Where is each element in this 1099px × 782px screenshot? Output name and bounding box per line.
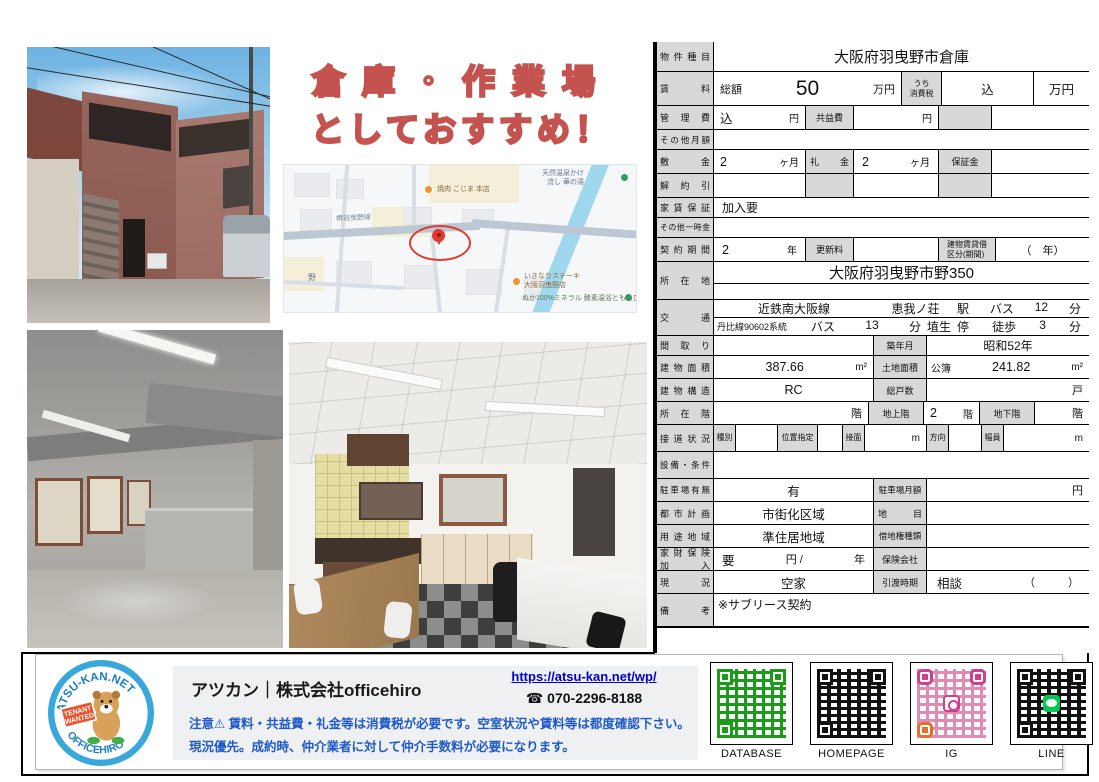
empty-gray-cell (806, 174, 854, 197)
white-desk (517, 558, 647, 648)
frontage-cell: m (865, 425, 927, 451)
row-label: 用途地域 (657, 525, 714, 547)
qr-instagram-pattern (917, 669, 986, 738)
row-label: 賃料 (657, 72, 714, 105)
row-label: 都市計画 (657, 502, 714, 524)
row-floor-located: 所在階 階 地上階 2階 地下階 階 (657, 402, 1089, 425)
row-label: 備考 (657, 594, 714, 626)
utility-pole (249, 47, 253, 215)
qr-database-label: DATABASE (710, 748, 793, 760)
other-monthly-value (714, 130, 1089, 149)
qr-line-pattern (1017, 669, 1086, 738)
row-label: 物件種目 (657, 42, 714, 71)
land-category-value (927, 502, 1089, 524)
insurance-company-label: 保険会社 (874, 548, 927, 570)
rail-line: 近鉄南大阪線 (714, 300, 874, 317)
contact-block: https://atsu-kan.net/wp/ ☎ 070-2296-8188 (476, 668, 692, 707)
total-units-value: 戸 (927, 379, 1089, 401)
transport-line1: 近鉄南大阪線 恵我ノ荘 駅バス12分 (714, 300, 1089, 318)
direction-label: 方向 (927, 425, 949, 451)
basement-cell: 階 (1035, 402, 1089, 424)
floor-shine (57, 576, 217, 626)
property-flyer-page: 倉庫・作業場 としておすすめ！ 天然温泉かけ流 (0, 0, 1099, 782)
photo-warehouse-interior (27, 330, 283, 648)
row-structure: 建物構造 RC 総戸数 戸 (657, 379, 1089, 402)
map-main-road (472, 219, 637, 239)
bus-time: バス13分 (811, 318, 921, 335)
row-property-type: 物件種目 大阪府羽曳野市倉庫 (657, 42, 1089, 72)
mascot-ear (112, 691, 120, 699)
qr-homepage-pattern (817, 669, 886, 738)
address-line2 (714, 284, 1089, 299)
onsen-poi-icon (620, 173, 629, 182)
map-block (404, 207, 432, 225)
mascot-ear (93, 691, 101, 699)
photo-building-exterior (27, 47, 270, 323)
above-ground-label: 地上階 (869, 402, 924, 424)
deposit-cell: 2ヶ月 (714, 150, 806, 173)
station-access: 駅バス12分 (957, 300, 1089, 317)
empty-cell (992, 106, 1089, 129)
address-value: 大阪府羽曳野市野350 (714, 262, 1089, 284)
window-frame (35, 478, 83, 546)
remarks-value: ※サブリース契約 (714, 594, 1089, 626)
row-parking: 駐車場有無 有 駐車場月額 円 (657, 479, 1089, 502)
management-fee-cell: 込円 (714, 106, 806, 129)
row-label: 契約期間 (657, 238, 714, 261)
headline-line1: 倉庫・作業場 (273, 58, 651, 106)
road-type-label: 種別 (714, 425, 736, 451)
row-label: 間取り (657, 336, 714, 355)
qr-database-pattern (717, 669, 786, 738)
property-table: 物件種目 大阪府羽曳野市倉庫 賃料 総額 50 万円 うち消費税 込 万円 管理… (655, 42, 1089, 653)
map-poi-steak: いきなりステーキ大阪羽曳野店 (524, 273, 580, 291)
handover-label: 引渡時期 (874, 571, 927, 593)
position-cell (818, 425, 843, 451)
row-label: 接道状況 (657, 425, 714, 451)
row-label: 現況 (657, 571, 714, 593)
map-block (300, 209, 332, 231)
row-rent: 賃料 総額 50 万円 うち消費税 込 万円 (657, 72, 1089, 106)
qr-instagram: IG (910, 662, 993, 760)
wood-cabinet-upper (347, 434, 409, 466)
mascot-shoe (112, 737, 125, 744)
building-area-cell: 387.66 m² (714, 356, 874, 378)
map-block (404, 265, 436, 289)
window-frame (87, 476, 123, 534)
row-label: 家賃保証 (657, 198, 714, 217)
row-management-fee: 管理費 込円 共益費 円 (657, 106, 1089, 130)
back-window (439, 474, 507, 526)
line-icon (1043, 695, 1060, 712)
lease-type-value: （ 年） (996, 238, 1089, 261)
company-logo: ATSU-KAN.NET OFFICEHIRO TENANT WANTED (48, 660, 154, 766)
qr-database: DATABASE (710, 662, 793, 760)
row-label: 管理費 (657, 106, 714, 129)
parking-fee-value: 円 (927, 479, 1089, 501)
row-road-access: 接道状況 種別 位置指定 接面 m 方向 幅員 m (657, 425, 1089, 452)
guarantee-money-cell (992, 150, 1089, 173)
station-name: 恵我ノ荘 (874, 300, 957, 317)
phone-number: ☎ 070-2296-8188 (476, 690, 692, 707)
parking-fee-label: 駐車場月額 (874, 479, 927, 501)
key-money-label: 礼金 (806, 150, 854, 173)
website-link[interactable]: https://atsu-kan.net/wp/ (511, 669, 656, 684)
zoning-value: 準住居地域 (714, 525, 874, 547)
road-type-cell (736, 425, 778, 451)
row-label: 建物面積 (657, 356, 714, 378)
current-status-value: 空家 (714, 571, 874, 593)
rent-amount-cell: 総額 50 万円 (714, 72, 902, 105)
contract-period-cell: 2年 (714, 238, 806, 261)
empty-cell (992, 174, 1089, 197)
headline-line2: としておすすめ！ (273, 106, 651, 154)
road-surface (27, 279, 270, 323)
city-planning-value: 市街化区域 (714, 502, 874, 524)
floor-plan-value (714, 336, 874, 355)
row-zoning: 用途地域 準住居地域 借地権種類 (657, 525, 1089, 548)
transport-cell: 近鉄南大阪線 恵我ノ荘 駅バス12分 丹比線90602系統 バス13分 埴生 停… (714, 300, 1089, 335)
rent-amount: 50 (796, 77, 819, 101)
row-address: 所在地 大阪府羽曳野市野350 (657, 262, 1089, 300)
handover-cell: 相談 （ ） (927, 571, 1089, 593)
home-insurance-cell: 要 円 / 年 (714, 548, 874, 570)
built-date-value: 昭和52年 (927, 336, 1089, 355)
row-rent-guarantee: 家賃保証 加入要 (657, 198, 1089, 218)
row-contract-period: 契約期間 2年 更新料 建物賃貸借区分(期間) （ 年） (657, 238, 1089, 262)
white-chair (383, 601, 413, 640)
empty-cell (854, 174, 939, 197)
floor-located-value: 階 (714, 402, 869, 424)
fluorescent-light (98, 330, 216, 364)
frontage-label: 接面 (843, 425, 865, 451)
renewal-fee-label: 更新料 (806, 238, 854, 261)
address-cell: 大阪府羽曳野市野350 (714, 262, 1089, 299)
bus-route: 丹比線90602系統 (714, 320, 811, 333)
land-category-label: 地目 (874, 502, 927, 524)
row-remarks: 備考 ※サブリース契約 (657, 594, 1089, 628)
row-label: その他月額 (657, 130, 714, 149)
partition-wall (145, 508, 269, 575)
row-equipment: 設備・条件 (657, 452, 1089, 479)
photo-collage: 倉庫・作業場 としておすすめ！ 天然温泉かけ流 (21, 42, 655, 654)
white-chair (293, 578, 323, 615)
exterior-stairs (83, 193, 119, 286)
mascot-eye (101, 700, 104, 703)
qr-line-label: LINE (1010, 748, 1093, 760)
map-poi-nuka: ぬか100%ミネラル 酵素温浴ともしび (522, 295, 637, 304)
leasehold-value (927, 525, 1089, 547)
land-area-cell: 公簿 241.82 m² (927, 356, 1089, 378)
other-onetime-value (714, 218, 1089, 237)
company-name: アツカン｜株式会社officehiro (191, 676, 421, 701)
row-label: 所在階 (657, 402, 714, 424)
basement-label: 地下階 (980, 402, 1035, 424)
transport-line2: 丹比線90602系統 バス13分 埴生 停徒歩3分 (714, 318, 1089, 335)
qr-line: LINE (1010, 662, 1093, 760)
photo-office-interior (289, 342, 647, 648)
kitchen-pass-window (359, 482, 423, 520)
notice-line1: 注意⚠ 賃料・共益費・礼金等は消費税が必要です。空室状況や賃料等は都度確認下さい… (189, 713, 690, 732)
parked-van (223, 215, 270, 277)
mascot-shoe (87, 737, 100, 744)
row-label: その他一時金 (657, 218, 714, 237)
stop-access: 停徒歩3分 (957, 318, 1089, 335)
row-other-monthly: その他月額 (657, 130, 1089, 150)
above-ground-cell: 2階 (924, 402, 980, 424)
empty-gray-cell (939, 106, 992, 129)
row-home-insurance: 家財保険 加入 要 円 / 年 保険会社 (657, 548, 1089, 571)
map-poi-yakiniku: 焼肉 こじま 本店 (437, 186, 490, 195)
structure-value: RC (714, 379, 874, 401)
common-fee-label: 共益費 (806, 106, 854, 129)
location-map: 天然温泉かけ流し 華の湯 焼肉 こじま 本店 堺羽曳野線 野 いきなりステーキ大… (283, 164, 637, 313)
row-label: 解約引 (657, 174, 714, 197)
notice-line2: 現況優先。成約時、仲介業者に対して仲介手数料が必要になります。 (189, 736, 575, 755)
direction-cell (949, 425, 982, 451)
qr-homepage: HOMEPAGE (810, 662, 893, 760)
row-deposit: 敷金 2ヶ月 礼金 2ヶ月 保証金 (657, 150, 1089, 174)
row-label: 家財保険 加入 (657, 548, 714, 570)
tax-unit: 万円 (1034, 72, 1089, 105)
total-units-label: 総戸数 (874, 379, 927, 401)
map-zone (284, 257, 324, 291)
footer-info-panel: アツカン｜株式会社officehiro https://atsu-kan.net… (173, 666, 698, 760)
mascot-eye (109, 700, 112, 703)
row-floor-plan: 間取り 築年月 昭和52年 (657, 336, 1089, 356)
doorway (573, 468, 615, 556)
rent-total-label: 総額 (720, 81, 742, 97)
built-date-label: 築年月 (874, 336, 927, 355)
tax-label: うち消費税 (902, 72, 942, 105)
map-road-name: 堺羽曳野線 (336, 214, 371, 225)
yakiniku-poi-icon (424, 185, 433, 194)
ac-unit (147, 253, 167, 269)
mascot-nose (104, 705, 108, 709)
lease-type-label: 建物賃貸借区分(期間) (939, 238, 996, 261)
row-label: 所在地 (657, 262, 714, 299)
row-cancellation: 解約引 (657, 174, 1089, 198)
bus-stop-name: 埴生 (921, 318, 957, 335)
row-current-status: 現況 空家 引渡時期 相談 （ ） (657, 571, 1089, 594)
phone-icon: ☎ (526, 690, 543, 706)
parking-value: 有 (714, 479, 874, 501)
instagram-icon (943, 695, 960, 712)
qr-code-row: DATABASE HOMEPAGE (710, 662, 1093, 760)
rent-guarantee-value: 加入要 (714, 198, 1089, 217)
row-label: 建物構造 (657, 379, 714, 401)
location-pin-icon (432, 229, 445, 242)
row-label: 駐車場有無 (657, 479, 714, 501)
empty-gray-cell (939, 174, 992, 197)
row-city-planning: 都市計画 市街化区域 地目 (657, 502, 1089, 525)
map-poi-onsen: 天然温泉かけ流し 華の湯 (542, 170, 584, 188)
qr-instagram-label: IG (910, 748, 993, 760)
leasehold-label: 借地権種類 (874, 525, 927, 547)
row-label: 敷金 (657, 150, 714, 173)
row-other-onetime: その他一時金 (657, 218, 1089, 238)
insurance-company-value (927, 548, 1089, 570)
row-transport: 交通 近鉄南大阪線 恵我ノ荘 駅バス12分 丹比線90602系統 バス13分 埴… (657, 300, 1089, 336)
headline: 倉庫・作業場 としておすすめ！ (273, 50, 651, 162)
renewal-fee-cell (854, 238, 939, 261)
tax-value: 込 (942, 72, 1034, 105)
entrance-door (123, 219, 145, 277)
empty-cell (714, 174, 806, 197)
width-label: 幅員 (982, 425, 1004, 451)
row-building-area: 建物面積 387.66 m² 土地面積 公簿 241.82 m² (657, 356, 1089, 379)
rent-unit: 万円 (873, 81, 895, 97)
footer: ATSU-KAN.NET OFFICEHIRO TENANT WANTED (35, 654, 1063, 770)
qr-homepage-label: HOMEPAGE (810, 748, 893, 760)
property-type-value: 大阪府羽曳野市倉庫 (714, 42, 1089, 71)
key-money-cell: 2ヶ月 (854, 150, 939, 173)
map-zone (429, 165, 519, 203)
steak-poi-icon (512, 277, 521, 286)
row-label: 交通 (657, 300, 714, 335)
guarantee-money-label: 保証金 (939, 150, 992, 173)
position-label: 位置指定 (778, 425, 818, 451)
common-fee-cell: 円 (854, 106, 939, 129)
row-label: 設備・条件 (657, 452, 714, 478)
neighbor-house-wall (27, 159, 79, 284)
land-area-label: 土地面積 (874, 356, 927, 378)
window-right (223, 165, 249, 208)
equipment-value (714, 452, 1089, 478)
map-block (336, 179, 364, 199)
map-block (294, 173, 330, 197)
map-area-label: 野 (308, 273, 316, 283)
width-cell: m (1004, 425, 1089, 451)
